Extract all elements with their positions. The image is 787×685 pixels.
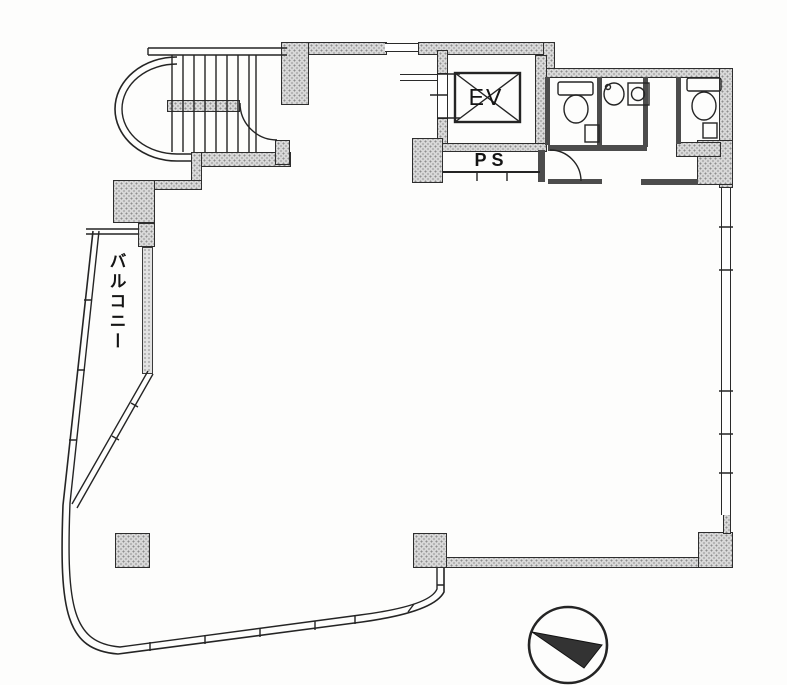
window-mullion-ticks-right	[719, 227, 733, 473]
sink-icon	[604, 83, 624, 105]
ps-room-outline	[443, 172, 540, 181]
floor-plan: EV PS バルコニー	[0, 0, 787, 685]
pipe-space-label: PS	[443, 147, 540, 173]
balcony-label: バルコニー	[99, 252, 133, 412]
elevator-label: EV	[452, 73, 520, 122]
staircase-icon	[115, 48, 287, 161]
toilet-icon-2	[687, 78, 721, 138]
north-arrow-icon	[529, 607, 607, 683]
washer-icon	[628, 83, 649, 105]
toilet-icon	[558, 82, 599, 142]
